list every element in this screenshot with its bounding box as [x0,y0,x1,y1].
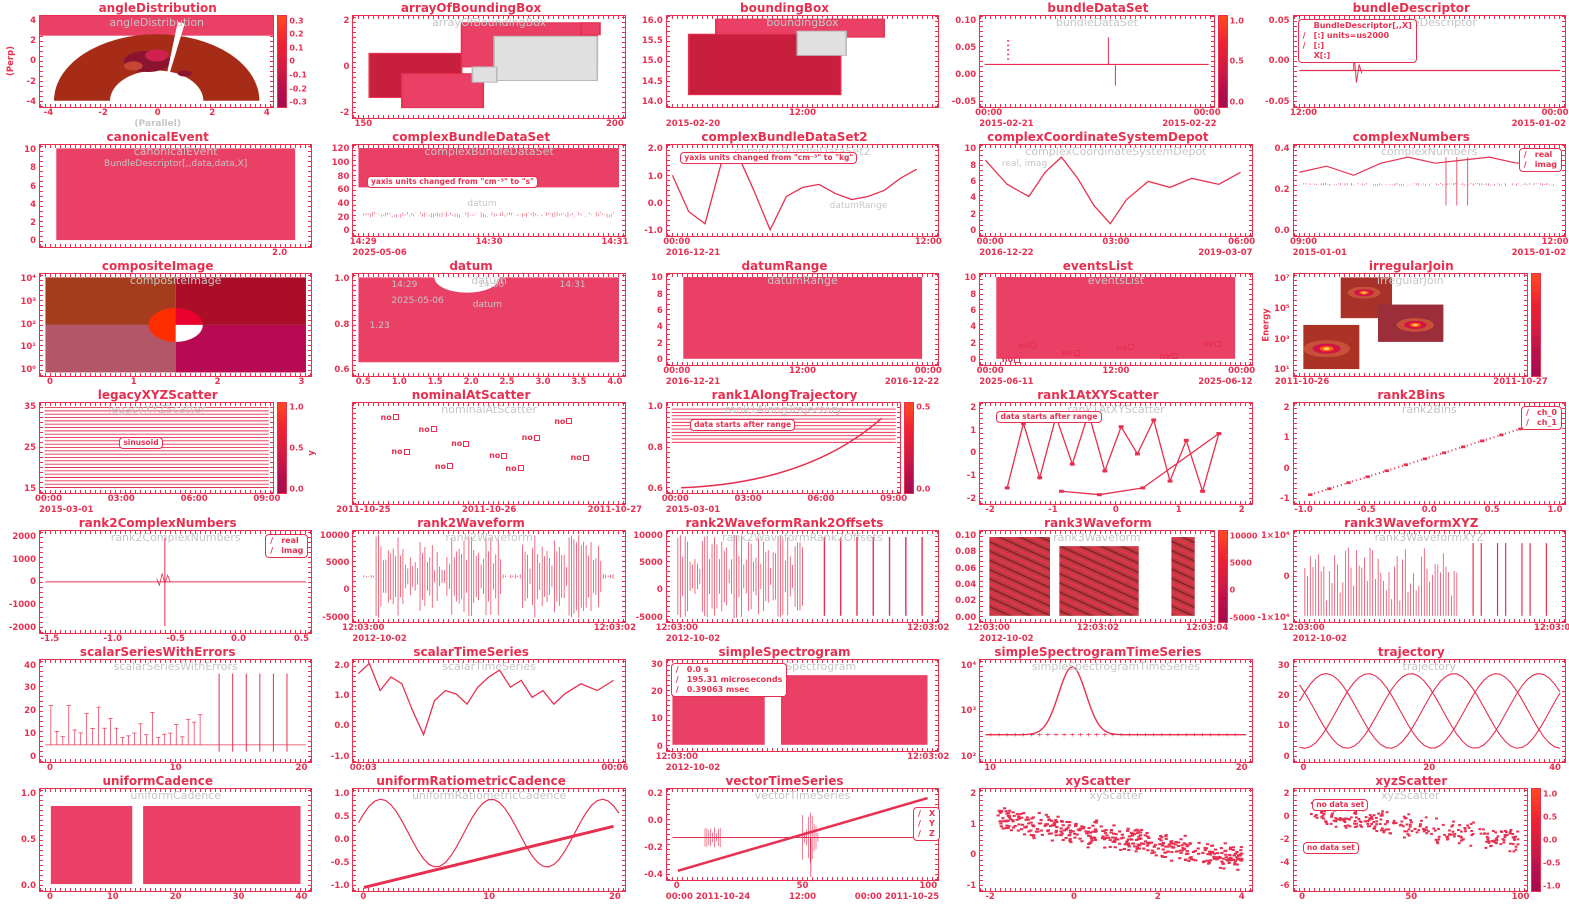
panel-canonicalEvent: canonicalEvent1086420canonicalEventBundl… [1,130,314,259]
y-tick: 1.0 [21,789,36,799]
y-tick: 6 [30,182,36,192]
x-tick: 12:00 [789,366,816,376]
colorbar-tick: 0.3 [289,16,303,25]
x-axis: 00:0012:0000:00 [666,366,939,377]
x-tick: 03:00 [108,494,135,504]
y-tick: 4 [970,322,976,332]
legend-item: ∕0.39063 msec [676,685,783,695]
x-date: 2015-01-01 [1293,248,1347,258]
colorbar-tick: 0.0 [1543,836,1557,845]
y-axis: y [316,402,352,506]
x-date-row: 2025-05-06 [352,248,625,259]
axes-eventsList: eventsListnononononono [979,273,1252,366]
x-tick: -1.0 [1294,505,1313,515]
x-tick: 100 [919,881,937,891]
y-tick: 0 [343,585,349,595]
x-tick: 50 [1405,892,1417,902]
y-axis: 210-1 [943,788,979,892]
y-tick: 30 [24,683,36,693]
y-tick: 2 [970,339,976,349]
x-tick: 0 [674,881,680,891]
y-axis: 0.20.0-0.2-0.4 [630,788,666,881]
x-tick: 2.0 [464,377,479,387]
gray-text: 1.23 [370,321,390,331]
x-tick: 12:00 [1290,108,1317,118]
y-tick: 1 [970,426,976,436]
panel-legacyXYZScatter: legacyXYZScatter352515legacyXYZScattersi… [1,388,314,517]
x-tick: 20 [170,892,182,902]
y-tick: -0.05 [952,97,977,107]
y-axis: 1.00.50.0 [3,788,39,892]
axes-title: arrayOfBoundingBox [432,16,546,29]
panel-title-complexBundleDataSet: complexBundleDataSet [316,130,625,144]
x-tick: -0.5 [1357,505,1376,515]
panel-uniformCadence: uniformCadence1.00.50.0uniformCadence010… [1,774,314,903]
panel-bundleDescriptor: bundleDescriptor0.050.00-0.05bundleDescr… [1255,1,1568,130]
legend-swatch: ∕ [1303,31,1314,41]
y-tick: 4 [970,193,976,203]
no-label: no [489,451,507,460]
y-axis: 1000050000-5000 [316,530,352,623]
y-tick: -6 [1280,881,1289,891]
y-tick: 0 [1284,572,1290,582]
y-tick: 0.00 [955,70,976,80]
y-tick: 10³ [961,706,977,716]
x-tick: 10 [483,892,495,902]
y-tick: 0.5 [334,812,349,822]
y-tick: -1.0 [331,752,350,762]
x-date: 2012-10-02 [979,634,1033,644]
panel-rank2ComplexNumbers: rank2ComplexNumbers200010000-1000-2000ra… [1,516,314,645]
y-axis: 200010000-1000-2000 [3,530,39,634]
legend-item: BundleDescriptor[,,X] [1303,21,1412,31]
y-tick: 0 [30,236,36,246]
y-tick: 10 [1278,721,1290,731]
x-tick: 00:00 [1194,108,1221,118]
legend-item: ∕Z [918,829,935,839]
colorbar-ticks: 0.30.20.10-0.1-0.2-0.3 [287,15,312,108]
axes-title: rank2WaveformRank2Offsets [722,531,883,544]
colorbar-tick: 1.0 [1230,16,1244,25]
annotation-chip: no data set [1303,842,1359,854]
x-axis: -2-1012 [979,505,1252,516]
colorbar-ticks: 1.00.50.0 [1228,15,1253,108]
legend-swatch: ∕ [1526,418,1537,428]
axes-canonicalEvent: canonicalEventBundleDescriptor[,,data,da… [39,144,312,248]
x-tick: 14:30 [476,237,503,247]
axes-trajectory: trajectory [1293,659,1566,763]
x-date-row: 2012-10-02 [979,634,1216,645]
no-label: no [1116,343,1134,352]
y-axis: 2.01.00.0-1.0 [316,659,352,763]
axes-title: bundleDataSet [1056,16,1138,29]
y-tick: 15.0 [642,56,663,66]
y-tick: 30 [651,660,663,670]
y-tick: 0.6 [648,484,663,494]
legend-item: ∕ch_0 [1526,408,1557,418]
y-tick: 10² [961,752,977,762]
y-tick: 10⁰ [20,365,36,375]
x-tick: 00:06 [601,763,628,773]
axes-title: rank3WaveformXYZ [1375,531,1484,544]
panel-complexCoordinateSystemDepot: complexCoordinateSystemDepot1086420compl… [941,130,1254,259]
x-tick: 40 [1549,763,1561,773]
panel-vectorTimeSeries: vectorTimeSeries0.20.0-0.2-0.4vectorTime… [628,774,941,903]
y-axis: 0.100.080.060.040.020.00 [943,530,979,623]
panel-title-rank2ComplexNumbers: rank2ComplexNumbers [3,516,312,530]
y-tick: 1×10⁴ [1261,531,1290,541]
x-axis: -4-2024 [39,108,276,119]
plot-canvas-arrayOfBoundingBox [353,16,624,118]
y-axis: 1.00.50.0-0.5-1.0 [316,788,352,892]
axes-angleDistribution: angleDistribution [39,15,274,108]
axes-complexBundleDataSet: complexBundleDataSetdatumyaxis units cha… [352,144,625,237]
y-tick: 0.2 [648,789,663,799]
axes-simpleSpectrogramTimeSeries: simpleSpectrogramTimeSeries [979,659,1252,763]
y-tick: -2 [967,494,976,504]
x-tick: 00:00 [977,366,1004,376]
y-tick: 5000 [639,558,663,568]
x-tick: 4 [264,108,270,118]
y-tick: -0.4 [644,870,663,880]
panel-title-canonicalEvent: canonicalEvent [3,130,312,144]
panel-title-rank2Waveform: rank2Waveform [316,516,625,530]
x-tick: 12:03:00 [968,623,1010,633]
colorbar-tick: 0.2 [289,30,303,39]
axes-title: uniformRatiometricCadence [412,789,566,802]
y-tick: -4 [27,97,36,107]
panel-title-scalarTimeSeries: scalarTimeSeries [316,645,625,659]
axes-nominalAtScatter: nominalAtScatternononononononononono [352,402,625,506]
x-date-row: 2015-01-012015-01-02 [1293,248,1566,259]
no-label: no [1159,352,1177,361]
x-tick: 00:00 [1542,108,1569,118]
x-axis: 12:03:0012:03:02 [1293,623,1566,634]
panel-title-legacyXYZScatter: legacyXYZScatter [3,388,312,402]
panel-title-scalarSeriesWithErrors: scalarSeriesWithErrors [3,645,312,659]
axes-title: rank2ComplexNumbers [111,531,241,544]
y-tick: -0.2 [644,843,663,853]
gray-text: real, imag [1002,159,1047,169]
colorbar-tick: 5000 [1230,559,1252,568]
legend-swatch: ∕ [676,665,687,675]
legend-item: ∕[:] units=us2000 [1303,31,1412,41]
x-tick: -1.0 [104,634,123,644]
y-tick: 0 [657,355,663,365]
x-tick: -2 [985,505,994,515]
plot-canvas-scalarTimeSeries [353,660,624,762]
axes-xyScatter: xyScatter [979,788,1252,892]
y-tick: 0.05 [955,43,976,53]
y-tick: -2 [340,108,349,118]
x-date-row: 2025-06-112025-06-12 [979,377,1252,388]
x-tick: 0 [1071,892,1077,902]
y-tick: -1 [967,471,976,481]
panel-title-simpleSpectrogramTimeSeries: simpleSpectrogramTimeSeries [943,645,1252,659]
panel-title-uniformRatiometricCadence: uniformRatiometricCadence [316,774,625,788]
x-tick: 00:00 [977,237,1004,247]
panel-scalarSeriesWithErrors: scalarSeriesWithErrors403020100scalarSer… [1,645,314,774]
axes-rank2ComplexNumbers: rank2ComplexNumbers∕real∕imag [39,530,312,634]
y-tick: 10⁴ [961,661,977,671]
legend-item: ∕0.0 s [676,665,783,675]
y-tick: 6 [970,306,976,316]
y-tick: 1 [1284,433,1290,443]
x-tick: 00:00 [975,108,1002,118]
x-date: 2025-06-11 [979,377,1033,387]
x-tick: 00:00 [663,237,690,247]
x-axis: 09:0012:00 [1293,237,1566,248]
no-label: no [1062,348,1080,357]
y-tick: 15.5 [642,36,663,46]
x-tick: 40 [296,892,308,902]
y-tick: 60 [338,185,350,195]
gray-text: datum [467,199,496,209]
y-tick: 10 [24,145,36,155]
axes-title: irregularJoin [1377,274,1444,287]
legend-item: X[:] [1303,51,1412,61]
x-tick: 06:00 [181,494,208,504]
y-tick: 8 [30,163,36,173]
axes-rank1AlongTrajectory: rank1AlongTrajectorydata starts after ra… [666,402,901,495]
x-tick: 0 [1299,892,1305,902]
y-tick: 1.0 [648,402,663,412]
x-axis: 0.51.01.52.02.53.03.54.0 [352,377,625,388]
panel-title-nominalAtScatter: nominalAtScatter [316,388,625,402]
x-tick: 4 [1239,892,1245,902]
annotation-chip: yaxis units changed from "cm⁻³" to "kg" [680,152,857,164]
x-axis: 14:2914:3014:31 [352,237,625,248]
plot-canvas-rank3WaveformXYZ [1294,531,1565,622]
x-tick: 2.5 [500,377,515,387]
no-label: no [522,433,540,442]
x-axis: 01020 [39,763,312,774]
axes-rank2Waveform: rank2Waveform [352,530,625,623]
x-axis: -1.5-1.0-0.50.00.5 [39,634,312,645]
x-date: 2016-12-21 [666,377,720,387]
x-tick: 12:00 [1542,237,1569,247]
plot-canvas-uniformRatiometricCadence [353,789,624,891]
y-tick: 20 [24,706,36,716]
axes-title: rank2Bins [1402,403,1457,416]
y-axis: 403020100 [3,659,39,763]
x-axis: 12:03:0012:03:02 [352,623,625,634]
y-tick: 0.4 [1275,144,1290,154]
axes-title: xyScatter [1090,789,1143,802]
panel-title-complexNumbers: complexNumbers [1257,130,1566,144]
plot-canvas-bundleDataSet [980,16,1213,107]
axes-scalarSeriesWithErrors: scalarSeriesWithErrors [39,659,312,763]
x-date: 2012-10-02 [1293,634,1347,644]
axes-scalarTimeSeries: scalarTimeSeries [352,659,625,763]
x-tick: 2 [215,377,221,387]
axes-boundingBox: boundingBox [666,15,939,108]
plot-canvas-complexBundleDataSet [353,145,624,236]
no-label: no [435,462,453,471]
legend: ∕ch_0∕ch_1 [1521,406,1562,430]
x-tick: 0.5 [294,634,309,644]
gray-text: 14:30 [478,280,504,290]
y-tick: 2.0 [648,144,663,154]
plot-canvas-boundingBox [667,16,938,107]
x-axis: 010203040 [39,892,312,903]
panel-simpleSpectrogramTimeSeries: simpleSpectrogramTimeSeries10⁴10³10²simp… [941,645,1254,774]
axes-complexCoordinateSystemDepot: complexCoordinateSystemDepotreal, imag [979,144,1252,237]
colorbar-tick: 0.5 [289,443,303,452]
x-tick: -2 [98,108,107,118]
panel-xyScatter: xyScatter210-1xyScatter-2024 [941,774,1254,903]
plot-canvas-xyScatter [980,789,1251,891]
x-tick: 0.0 [231,634,246,644]
axes-title: canonicalEvent [134,145,218,158]
x-axis: 00:0012:0000:00 [979,366,1252,377]
x-tick: -1 [1048,505,1057,515]
x-tick: 03:00 [1102,237,1129,247]
y-axis: 20-2 [316,15,352,119]
colorbar-ticks: 0.50.0 [914,402,939,495]
panel-title-boundingBox: boundingBox [630,1,939,15]
y-tick: -0.05 [1265,97,1290,107]
colorbar-tick: 0.5 [1230,57,1244,66]
x-tick: 2011-10-27 [1493,377,1547,387]
axes-title: scalarTimeSeries [442,660,536,673]
y-tick: -1×10⁴ [1257,613,1289,623]
x-date-row: 2012-10-02 [666,634,939,645]
x-axis: 00:0003:0006:0009:00 [666,494,903,505]
x-tick: 10 [107,892,119,902]
x-tick: 12:00 [915,237,942,247]
x-tick: 30 [233,892,245,902]
x-date-row: 2015-03-01 [666,505,903,516]
x-tick: 0 [155,108,161,118]
y-tick: 10⁷ [1274,274,1290,284]
axes-complexNumbers: complexNumbers∕real∕imag [1293,144,1566,237]
y-axis: 3020100 [630,659,666,752]
y-axis: 1086420 [943,273,979,366]
x-tick: 0 [360,892,366,902]
x-axis: 0123 [39,377,312,388]
y-tick: 0 [1284,752,1290,762]
y-axis: 1086420 [943,144,979,237]
x-tick: 0 [47,892,53,902]
y-tick: 1.0 [334,691,349,701]
panel-irregularJoin: irregularJoinEnergy10⁷10⁵10³10¹irregular… [1255,259,1568,388]
x-tick: 0 [1301,763,1307,773]
legend-swatch: ∕ [918,829,929,839]
y-tick: -1.0 [331,881,350,891]
x-tick: 4.0 [607,377,622,387]
y-tick: 0.6 [334,365,349,375]
no-label: no [571,453,589,462]
panel-title-datum: datum [316,259,625,273]
y-tick: 0.0 [334,835,349,845]
x-date: 2016-12-21 [666,248,720,258]
x-date: 2012-10-02 [666,634,720,644]
colorbar-ticks: 1000050000-5000 [1228,530,1253,623]
y-tick: 30 [1278,661,1290,671]
panel-title-uniformCadence: uniformCadence [3,774,312,788]
x-date-row: 2015-01-02 [1293,119,1566,130]
no-label: no [554,417,572,426]
x-axis: 00:0003:0006:00 [979,237,1252,248]
y-tick: 0.02 [955,596,976,606]
y-tick: 40 [338,199,350,209]
y-tick: 4 [30,16,36,26]
x-date: 2016-12-22 [885,377,939,387]
legend-item: ∕ch_1 [1526,418,1557,428]
annotation-chip: yaxis units changed from "cm⁻³" to "s" [367,176,538,188]
panel-title-arrayOfBoundingBox: arrayOfBoundingBox [316,1,625,15]
y-tick: 6 [970,177,976,187]
y-axis: 1.00.80.6 [316,273,352,377]
panel-nominalAtScatter: nominalAtScatterynominalAtScatternononon… [314,388,627,517]
panel-compositeImage: compositeImage10⁴10³10²10¹10⁰compositeIm… [1,259,314,388]
panel-title-irregularJoin: irregularJoin [1257,259,1566,273]
plot-canvas-datumRange [667,274,938,365]
y-tick: 6 [657,306,663,316]
x-axis: -1.0-0.50.00.51.0 [1293,505,1566,516]
x-tick: 20 [609,892,621,902]
x-tick: 150 [354,119,372,129]
x-date: 00:00 2011-10-24 [666,892,750,902]
x-axis: 12:00 [666,108,939,119]
legend-swatch: ∕ [1526,408,1537,418]
x-tick: 09:00 [253,494,280,504]
no-label: no [505,464,523,473]
x-tick: 1 [1176,505,1182,515]
annotation-chip: sinusoid [119,437,162,449]
y-tick: 10000 [633,531,663,541]
y-tick: 0 [343,226,349,236]
y-tick: 0 [1284,812,1290,822]
panel-angleDistribution: angleDistribution(Perp)420-2-4angleDistr… [1,1,314,130]
x-tick: 12:03:00 [656,752,698,762]
axes-rank1AtXYScatter: rank1AtXYScatterdata starts after range [979,402,1252,506]
panel-datum: datum1.00.80.6datum14:2914:3014:312025-0… [314,259,627,388]
x-tick: 3 [298,377,304,387]
y-tick: 16.0 [642,16,663,26]
panel-bundleDataSet: bundleDataSet0.100.050.00-0.05bundleData… [941,1,1254,130]
colorbar-tick: -0.5 [1543,858,1561,867]
plot-canvas-irregularJoin [1294,274,1527,376]
x-date: 2012-10-02 [666,763,720,773]
x-axis: 2.0 [39,248,312,259]
x-date-row: (Parallel) [39,119,276,130]
panel-complexBundleDataSet2: complexBundleDataSet22.01.00.0-1.0comple… [628,130,941,259]
panel-boundingBox: boundingBox16.015.515.014.514.0boundingB… [628,1,941,130]
x-tick: 09:00 [880,494,907,504]
axes-uniformRatiometricCadence: uniformRatiometricCadence [352,788,625,892]
x-date-row: 2016-12-21 [666,248,939,259]
x-axis: 02040 [1293,763,1566,774]
legend-item: ∕195.31 microseconds [676,675,783,685]
no-label: no [1002,355,1020,364]
y-axis: (Perp)420-2-4 [3,15,39,108]
y-tick: 0 [657,742,663,752]
x-tick: -2 [985,892,994,902]
x-tick: 3.0 [535,377,550,387]
panel-scalarTimeSeries: scalarTimeSeries2.01.00.0-1.0scalarTimeS… [314,645,627,774]
x-axis: 01020 [352,892,625,903]
x-tick: 10 [984,763,996,773]
axes-title: simpleSpectrogramTimeSeries [1032,660,1200,673]
no-label: no [1203,339,1221,348]
x-tick: 12:00 [1102,366,1129,376]
axes-arrayOfBoundingBox: arrayOfBoundingBox [352,15,625,119]
panel-title-rank1AlongTrajectory: rank1AlongTrajectory [630,388,939,402]
y-tick: 2 [1284,403,1290,413]
x-tick: 20 [1236,763,1248,773]
